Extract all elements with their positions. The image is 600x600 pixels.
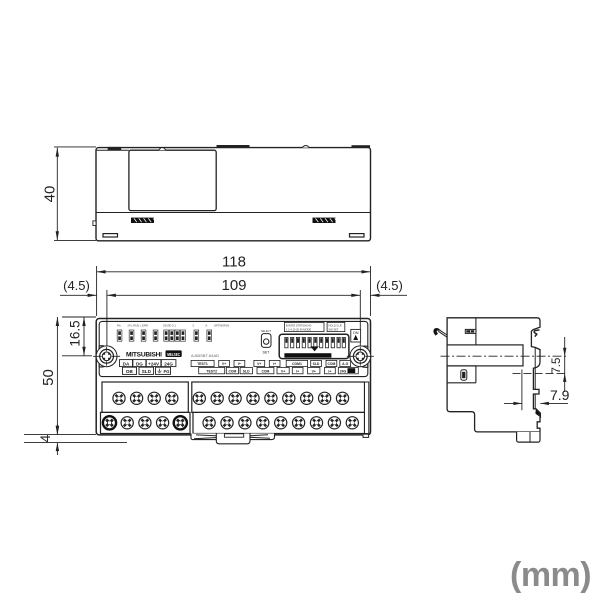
svg-text:(4.5): (4.5) [63,278,90,293]
svg-text:TEST1: TEST1 [197,362,208,366]
svg-text:COM1: COM1 [292,362,302,366]
svg-text:HOLD CLR: HOLD CLR [329,323,342,327]
svg-text:I+: I+ [328,369,331,373]
svg-text:118: 118 [222,253,246,270]
svg-text:I+: I+ [238,362,241,366]
svg-text:7.9: 7.9 [550,387,570,403]
svg-text:MITSUBISHI: MITSUBISHI [126,352,162,359]
svg-text:24 L RUN L ERR: 24 L RUN L ERR [128,323,148,327]
svg-text:COM: COM [228,369,236,373]
svg-text:50: 50 [40,369,57,386]
svg-text:COM: COM [261,369,269,373]
svg-text:SLD: SLD [313,362,320,366]
svg-text:V+: V+ [312,369,316,373]
svg-text:I+: I+ [273,362,276,366]
svg-text:DB: DB [126,369,133,374]
svg-text:FG: FG [163,369,170,374]
svg-text:1 2 4 10 20 40 MODE: 1 2 4 10 20 40 MODE [286,327,311,331]
svg-text:SLD: SLD [243,369,250,373]
svg-text:SLD: SLD [142,369,152,374]
svg-text:7.5: 7.5 [551,358,563,374]
svg-text:I+: I+ [296,369,299,373]
svg-text:V+: V+ [281,369,285,373]
svg-text:SW SET: SW SET [329,327,339,331]
svg-text:B RATE STATION NO.: B RATE STATION NO. [286,323,312,327]
svg-text:4: 4 [37,434,53,442]
svg-text:24G: 24G [164,361,173,366]
svg-text:24G: 24G [340,369,347,373]
svg-text:COM: COM [327,362,335,366]
svg-text:109: 109 [221,277,246,294]
svg-text:OPT58 RUN: OPT58 RUN [214,323,229,327]
svg-text:SD RD 0 1: SD RD 0 1 [163,323,176,327]
svg-text:SET: SET [263,351,271,355]
svg-text:TEST2: TEST2 [206,369,217,373]
svg-text:DA: DA [123,361,130,366]
svg-text:MELSEC: MELSEC [167,352,180,357]
svg-text:A.G: A.G [342,362,348,366]
svg-text:V+: V+ [257,362,261,366]
svg-text:(mm): (mm) [510,556,591,594]
svg-text:+24V: +24V [148,361,160,366]
svg-text:DG: DG [136,361,143,366]
svg-text:AJ65SBT-64AD: AJ65SBT-64AD [191,353,219,358]
svg-text:16.5: 16.5 [68,320,83,346]
svg-text:(4.5): (4.5) [376,278,403,293]
svg-text:V+: V+ [222,362,226,366]
svg-text:SELECT: SELECT [261,329,272,333]
svg-text:Pw: Pw [117,323,121,327]
svg-text:A: A [205,323,207,327]
svg-text:ON: ON [353,331,359,335]
svg-text:40: 40 [42,186,59,203]
